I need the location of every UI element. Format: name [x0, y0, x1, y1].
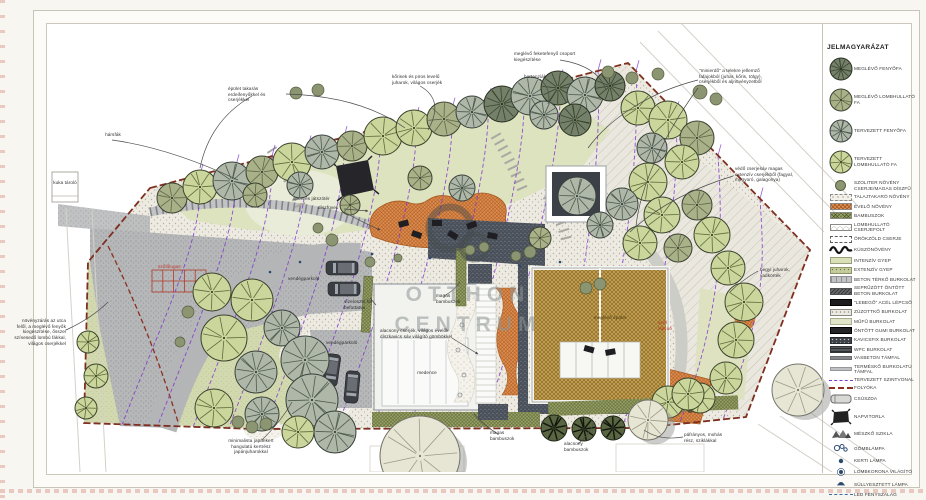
- sw-black-icon: [827, 299, 854, 306]
- legend-item-21: VASBETON TÁMFAL: [827, 355, 917, 361]
- legend-item-label: FOLYÓKA: [854, 385, 877, 391]
- legend-item-29: KERTI LÁMPA: [827, 457, 917, 465]
- legend-item-label: EXTENZÍV GYEP: [854, 267, 893, 273]
- legend-item-label: "LEBEGŐ" ACÉL LÉPCSŐ: [854, 300, 912, 306]
- legend-item-15: "LEBEGŐ" ACÉL LÉPCSŐ: [827, 299, 917, 306]
- sw-speckle-icon: [827, 267, 854, 274]
- bar-lightgray-icon: [827, 367, 854, 371]
- legend-item-label: BETON TÉRKŐ BURKOLAT: [854, 277, 916, 283]
- legend-item-label: INTENZÍV GYEP: [854, 258, 891, 264]
- bottom-edge-marks: [0, 489, 926, 493]
- icon-rock-icon: [827, 428, 854, 440]
- legend-item-label: MŰFŰ BURKOLAT: [854, 319, 895, 325]
- icon-globelamp-icon: [827, 442, 854, 454]
- tree-pine-planned-icon: [827, 118, 854, 144]
- ln-purple-icon: [827, 380, 854, 381]
- ln-blue-icon: [827, 494, 854, 495]
- icon-sail-icon: [827, 408, 854, 426]
- legend-item-8: LOMBHULLATÓ CSERJEFOLT: [827, 222, 917, 233]
- sw-green-icon: [827, 257, 854, 264]
- legend-item-14: SEPRŰZÖTT ÖNTÖTT BETON BURKOLAT: [827, 285, 917, 296]
- legend-item-26: NAPVITORLA: [827, 408, 917, 426]
- tree-decid-planned-icon: [827, 149, 854, 175]
- legend-item-2: TERVEZETT FENYŐFA: [827, 118, 917, 144]
- legend-item-label: MEGLÉVŐ LOMBHULLATÓ FA: [854, 94, 917, 105]
- site-plan-drawing: [0, 0, 926, 500]
- legend-item-6: ÉVELŐ NÖVÉNY: [827, 203, 917, 210]
- legend-item-label: ÉVELŐ NÖVÉNY: [854, 204, 892, 210]
- icon-slide-icon: [827, 393, 854, 405]
- legend-item-label: TERVEZETT FENYŐFA: [854, 128, 906, 134]
- site-plan-page: OTTHON CENTRUM hársfáképület takarás erd…: [0, 0, 926, 500]
- legend-item-30: LOMBKORONA VILÁGÍTÓ: [827, 467, 917, 477]
- legend-item-label: VASBETON TÁMFAL: [854, 355, 900, 361]
- legend-item-11: INTENZÍV GYEP: [827, 257, 917, 264]
- left-edge-marks: [0, 0, 5, 500]
- sw-brick-icon: [827, 276, 854, 283]
- sw-darkspeckle-icon: [827, 337, 854, 344]
- legend-item-label: SZOLITER NÖVÉNY CSERJE/MAGAS DÍSZFŰ: [854, 180, 917, 191]
- ln-red-icon: [827, 387, 854, 389]
- tree-decid-existing-icon: [827, 87, 854, 113]
- legend-item-28: GÖMBLÁMPA: [827, 442, 917, 454]
- sw-scallop-icon: [827, 224, 854, 231]
- legend-item-label: MEGLÉVŐ FENYŐFA: [854, 66, 902, 72]
- sw-dashed-icon: [827, 236, 854, 243]
- legend-item-label: KAVICSFIX BURKOLAT: [854, 337, 906, 343]
- legend-item-27: MÉSZKŐ SZIKLA: [827, 428, 917, 440]
- legend-item-1: MEGLÉVŐ LOMBHULLATÓ FA: [827, 87, 917, 113]
- legend-item-label: TERVEZETT LOMBHULLATÓ FA: [854, 156, 917, 167]
- legend-item-12: EXTENZÍV GYEP: [827, 267, 917, 274]
- legend-item-0: MEGLÉVŐ FENYŐFA: [827, 56, 917, 82]
- legend-item-label: GÖMBLÁMPA: [854, 446, 885, 452]
- legend-panel: JELMAGYARÁZAT MEGLÉVŐ FENYŐFAMEGLÉVŐ LOM…: [827, 44, 917, 500]
- legend-item-16: ZÚZOTTKŐ BURKOLAT: [827, 309, 917, 316]
- legend-item-4: SZOLITER NÖVÉNY CSERJE/MAGAS DÍSZFŰ: [827, 180, 917, 191]
- sw-orange-icon: [827, 203, 854, 210]
- legend-title: JELMAGYARÁZAT: [827, 44, 917, 51]
- legend-item-25: CSÚSZDA: [827, 393, 917, 405]
- sw-lightgreen-icon: [827, 318, 854, 325]
- legend-item-3: TERVEZETT LOMBHULLATÓ FA: [827, 149, 917, 175]
- legend-item-10: KÚSZÓNÖVÉNY: [827, 245, 917, 255]
- legend-item-label: CSÚSZDA: [854, 396, 877, 402]
- legend-item-label: LOMBHULLATÓ CSERJEFOLT: [854, 222, 917, 233]
- legend-item-24: FOLYÓKA: [827, 385, 917, 391]
- legend-item-label: TERMÉSKŐ BURKOLATÚ TÁMFAL: [854, 364, 917, 375]
- legend-item-7: BAMBUSZOK: [827, 212, 917, 219]
- legend-item-label: KÚSZÓNÖVÉNY: [854, 247, 891, 253]
- sw-olive-icon: [827, 212, 854, 219]
- legend-item-label: ZÚZOTTKŐ BURKOLAT: [854, 309, 907, 315]
- sw-black2-icon: [827, 327, 854, 334]
- legend-separator-line: [822, 24, 823, 473]
- sw-gravel-icon: [827, 309, 854, 316]
- legend-item-label: MÉSZKŐ SZIKLA: [854, 431, 893, 437]
- legend-item-13: BETON TÉRKŐ BURKOLAT: [827, 276, 917, 283]
- squiggle-icon: [827, 245, 854, 255]
- legend-item-label: ÖNTÖTT GUMI BURKOLAT: [854, 328, 915, 334]
- legend-item-label: KERTI LÁMPA: [854, 458, 886, 464]
- legend-item-label: WPC BURKOLAT: [854, 347, 892, 353]
- legend-item-19: KAVICSFIX BURKOLAT: [827, 337, 917, 344]
- legend-item-20: WPC BURKOLAT: [827, 346, 917, 353]
- legend-item-18: ÖNTÖTT GUMI BURKOLAT: [827, 327, 917, 334]
- icon-dot2-icon: [827, 467, 854, 477]
- legend-item-label: SÜLLYESZTETT LÁMPA: [854, 482, 908, 488]
- legend-item-9: ÖRÖKZÖLD CSERJE: [827, 236, 917, 243]
- legend-item-17: MŰFŰ BURKOLAT: [827, 318, 917, 325]
- tree-pine-existing-icon: [827, 56, 854, 82]
- dot-olive-icon: [827, 180, 854, 191]
- legend-item-5: TALAJTAKARÓ NÖVÉNY: [827, 194, 917, 201]
- legend-item-23: TERVEZETT SZINTVONAL: [827, 377, 917, 383]
- sw-darkgray-icon: [827, 288, 854, 295]
- legend-item-label: TALAJTAKARÓ NÖVÉNY: [854, 194, 910, 200]
- legend-item-22: TERMÉSKŐ BURKOLATÚ TÁMFAL: [827, 364, 917, 375]
- legend-item-label: NAPVITORLA: [854, 414, 885, 420]
- legend-item-label: ÖRÖKZÖLD CSERJE: [854, 236, 902, 242]
- legend-item-label: BAMBUSZOK: [854, 213, 884, 219]
- legend-item-label: LOMBKORONA VILÁGÍTÓ: [854, 469, 912, 475]
- bar-gray-icon: [827, 356, 854, 360]
- sw-stripes-icon: [827, 346, 854, 353]
- sw-dotted-icon: [827, 194, 854, 201]
- legend-item-label: SEPRŰZÖTT ÖNTÖTT BETON BURKOLAT: [854, 285, 917, 296]
- icon-dot-icon: [827, 457, 854, 465]
- legend-item-label: TERVEZETT SZINTVONAL: [854, 377, 914, 383]
